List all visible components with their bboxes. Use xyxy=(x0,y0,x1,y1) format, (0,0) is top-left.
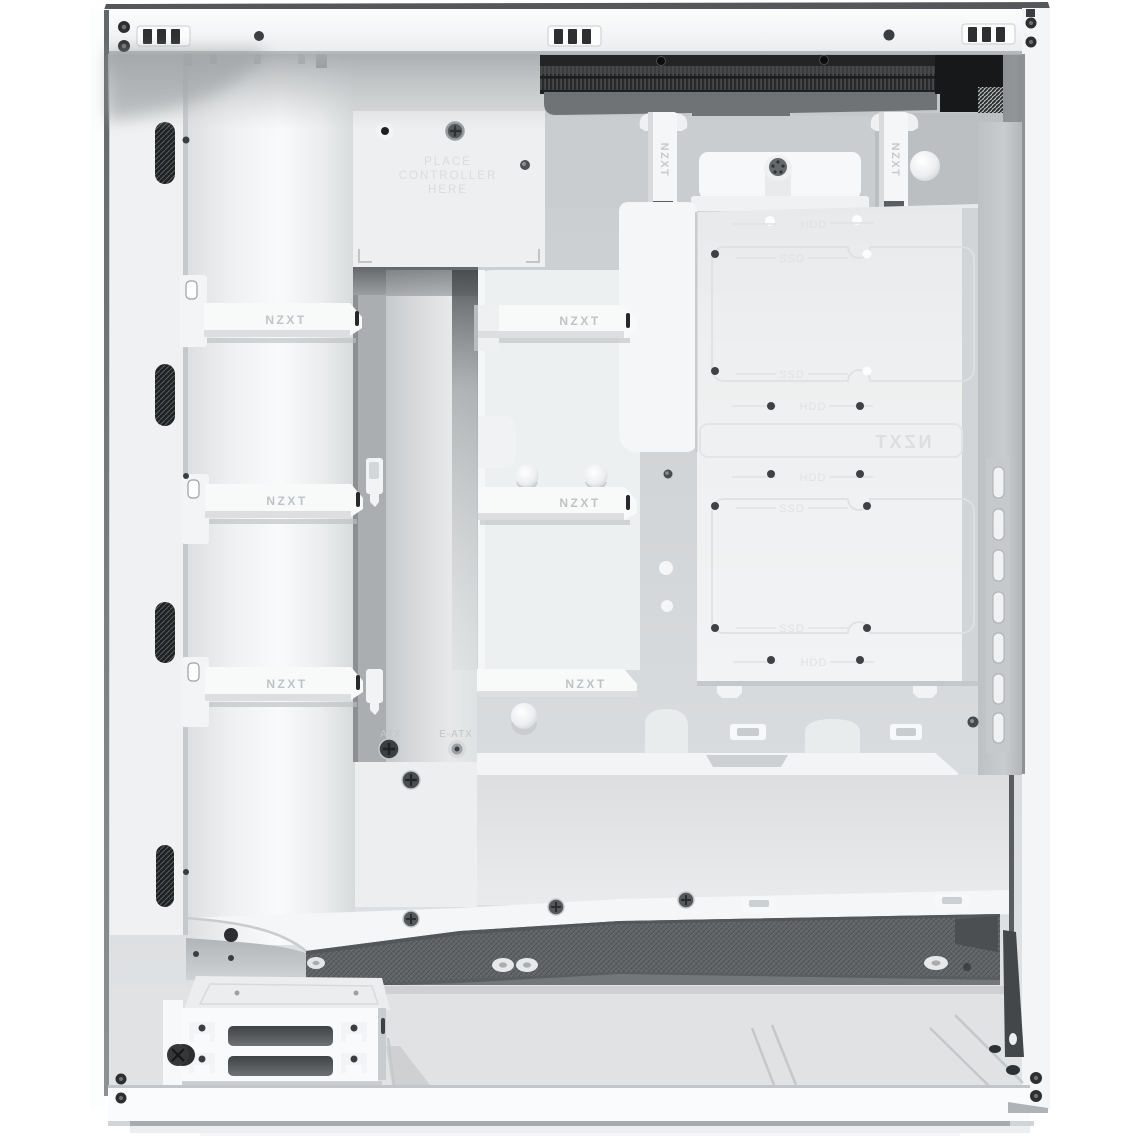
svg-text:HERE: HERE xyxy=(428,184,468,196)
svg-text:HDD: HDD xyxy=(800,401,827,413)
svg-text:NZXT: NZXT xyxy=(889,143,901,178)
svg-text:NZXT: NZXT xyxy=(266,494,307,508)
svg-text:NZXT: NZXT xyxy=(873,432,932,452)
svg-text:NZXT: NZXT xyxy=(565,677,606,691)
svg-text:SSD: SSD xyxy=(779,253,805,265)
svg-text:HDD: HDD xyxy=(801,657,828,669)
svg-text:SSD: SSD xyxy=(779,369,805,381)
svg-text:NZXT: NZXT xyxy=(658,143,670,178)
svg-text:NZXT: NZXT xyxy=(265,313,306,327)
svg-text:NZXT: NZXT xyxy=(559,496,600,510)
svg-text:PLACE: PLACE xyxy=(424,156,472,168)
svg-text:NZXT: NZXT xyxy=(559,314,600,328)
svg-text:SSD: SSD xyxy=(779,623,805,635)
svg-text:ATX: ATX xyxy=(380,729,402,740)
svg-text:NZXT: NZXT xyxy=(266,677,307,691)
svg-text:CONTROLLER: CONTROLLER xyxy=(399,170,498,182)
svg-text:E-ATX: E-ATX xyxy=(439,729,473,740)
svg-text:SSD: SSD xyxy=(779,503,805,515)
svg-text:HDD: HDD xyxy=(801,219,828,231)
svg-text:HDD: HDD xyxy=(800,472,827,484)
